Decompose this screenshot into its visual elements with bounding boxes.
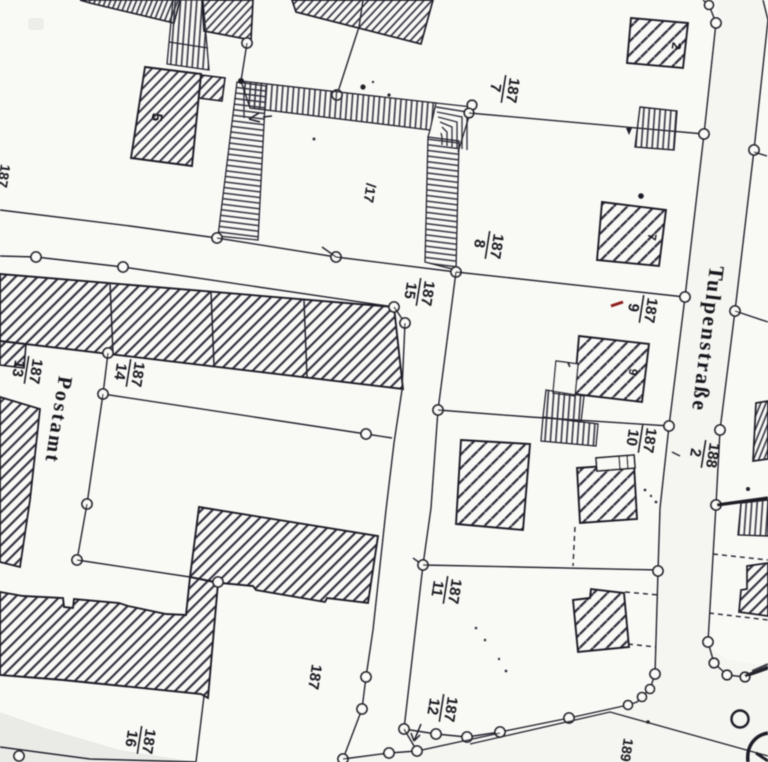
svg-text:12: 12	[423, 697, 442, 716]
svg-text:13: 13	[8, 359, 27, 378]
svg-text:/17: /17	[361, 182, 380, 204]
svg-text:15: 15	[400, 281, 419, 300]
svg-text:11: 11	[427, 579, 446, 597]
svg-text:16: 16	[121, 729, 140, 748]
svg-text:10: 10	[622, 428, 641, 447]
svg-text:14: 14	[110, 362, 130, 382]
